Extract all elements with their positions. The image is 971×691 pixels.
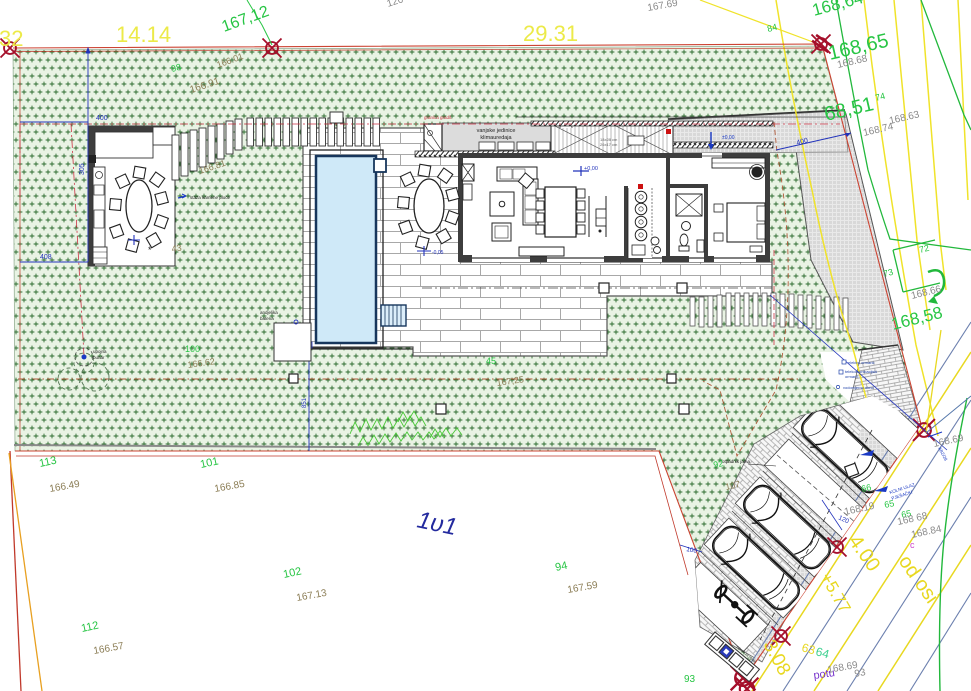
svg-text:vodomjerno okno: vodomjerno okno	[843, 385, 874, 390]
svg-text:43: 43	[171, 243, 182, 254]
svg-text:305: 305	[79, 163, 86, 175]
svg-text:32: 32	[0, 26, 23, 51]
svg-text:otpadnik jama: otpadnik jama	[722, 459, 751, 464]
svg-text:851: 851	[302, 397, 308, 408]
svg-text:±0,00: ±0,00	[722, 135, 735, 141]
svg-text:408: 408	[40, 254, 52, 261]
svg-text:65: 65	[883, 498, 895, 510]
svg-text:92: 92	[712, 458, 724, 470]
svg-text:26x17 cm: 26x17 cm	[600, 142, 618, 147]
svg-text:vanjske jedinice: vanjske jedinice	[477, 128, 516, 134]
svg-text:andjelika: andjelika	[260, 310, 278, 315]
svg-text:-0,05: -0,05	[432, 250, 444, 256]
svg-text:29.31: 29.31	[523, 21, 578, 46]
svg-text:*: *	[148, 245, 152, 255]
svg-text:elektro ormarić: elektro ormarić	[848, 360, 874, 365]
svg-text:batena: batena	[260, 316, 274, 321]
svg-text:ormarić: ormarić	[845, 374, 858, 379]
svg-text:93: 93	[684, 674, 696, 685]
svg-text:400: 400	[96, 115, 108, 122]
svg-text:100: 100	[185, 344, 200, 354]
svg-text:14.14: 14.14	[116, 22, 171, 47]
svg-text:66: 66	[860, 482, 872, 494]
svg-text:klimauredaja: klimauredaja	[480, 135, 512, 141]
svg-text:c: c	[910, 540, 915, 550]
svg-text:bunar: bunar	[93, 355, 105, 360]
svg-text:granica gradil.: granica gradil.	[424, 115, 452, 120]
svg-text:staza kamene ploce: staza kamene ploce	[190, 195, 231, 200]
svg-text:94: 94	[554, 560, 568, 574]
svg-text:upojna: upojna	[93, 349, 107, 354]
svg-text:45: 45	[486, 356, 496, 366]
svg-text:+0,00: +0,00	[584, 166, 598, 172]
